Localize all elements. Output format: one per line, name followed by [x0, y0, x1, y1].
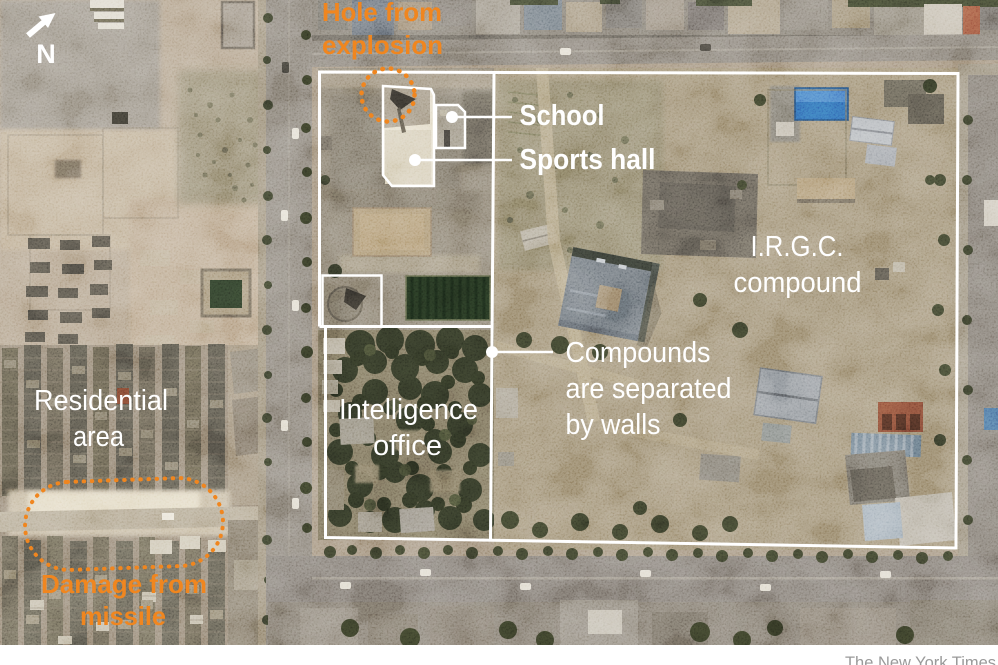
svg-text:explosion: explosion [322, 30, 443, 60]
svg-text:Hole from: Hole from [322, 0, 442, 27]
svg-text:missile: missile [80, 601, 166, 631]
svg-text:Sports hall: Sports hall [520, 144, 656, 176]
svg-text:I.R.G.C.: I.R.G.C. [751, 231, 844, 263]
svg-text:area: area [73, 421, 125, 453]
svg-text:compound: compound [734, 267, 862, 299]
svg-text:by walls: by walls [566, 409, 661, 441]
svg-text:Residential: Residential [34, 385, 168, 417]
svg-text:are separated: are separated [566, 373, 732, 405]
svg-text:The New York Times: The New York Times [845, 654, 996, 665]
svg-text:office: office [373, 430, 442, 462]
svg-text:Intelligence: Intelligence [339, 394, 478, 426]
svg-text:Compounds: Compounds [566, 337, 711, 369]
svg-text:N: N [36, 39, 56, 69]
svg-text:Damage from: Damage from [41, 569, 207, 599]
svg-text:School: School [520, 100, 605, 132]
